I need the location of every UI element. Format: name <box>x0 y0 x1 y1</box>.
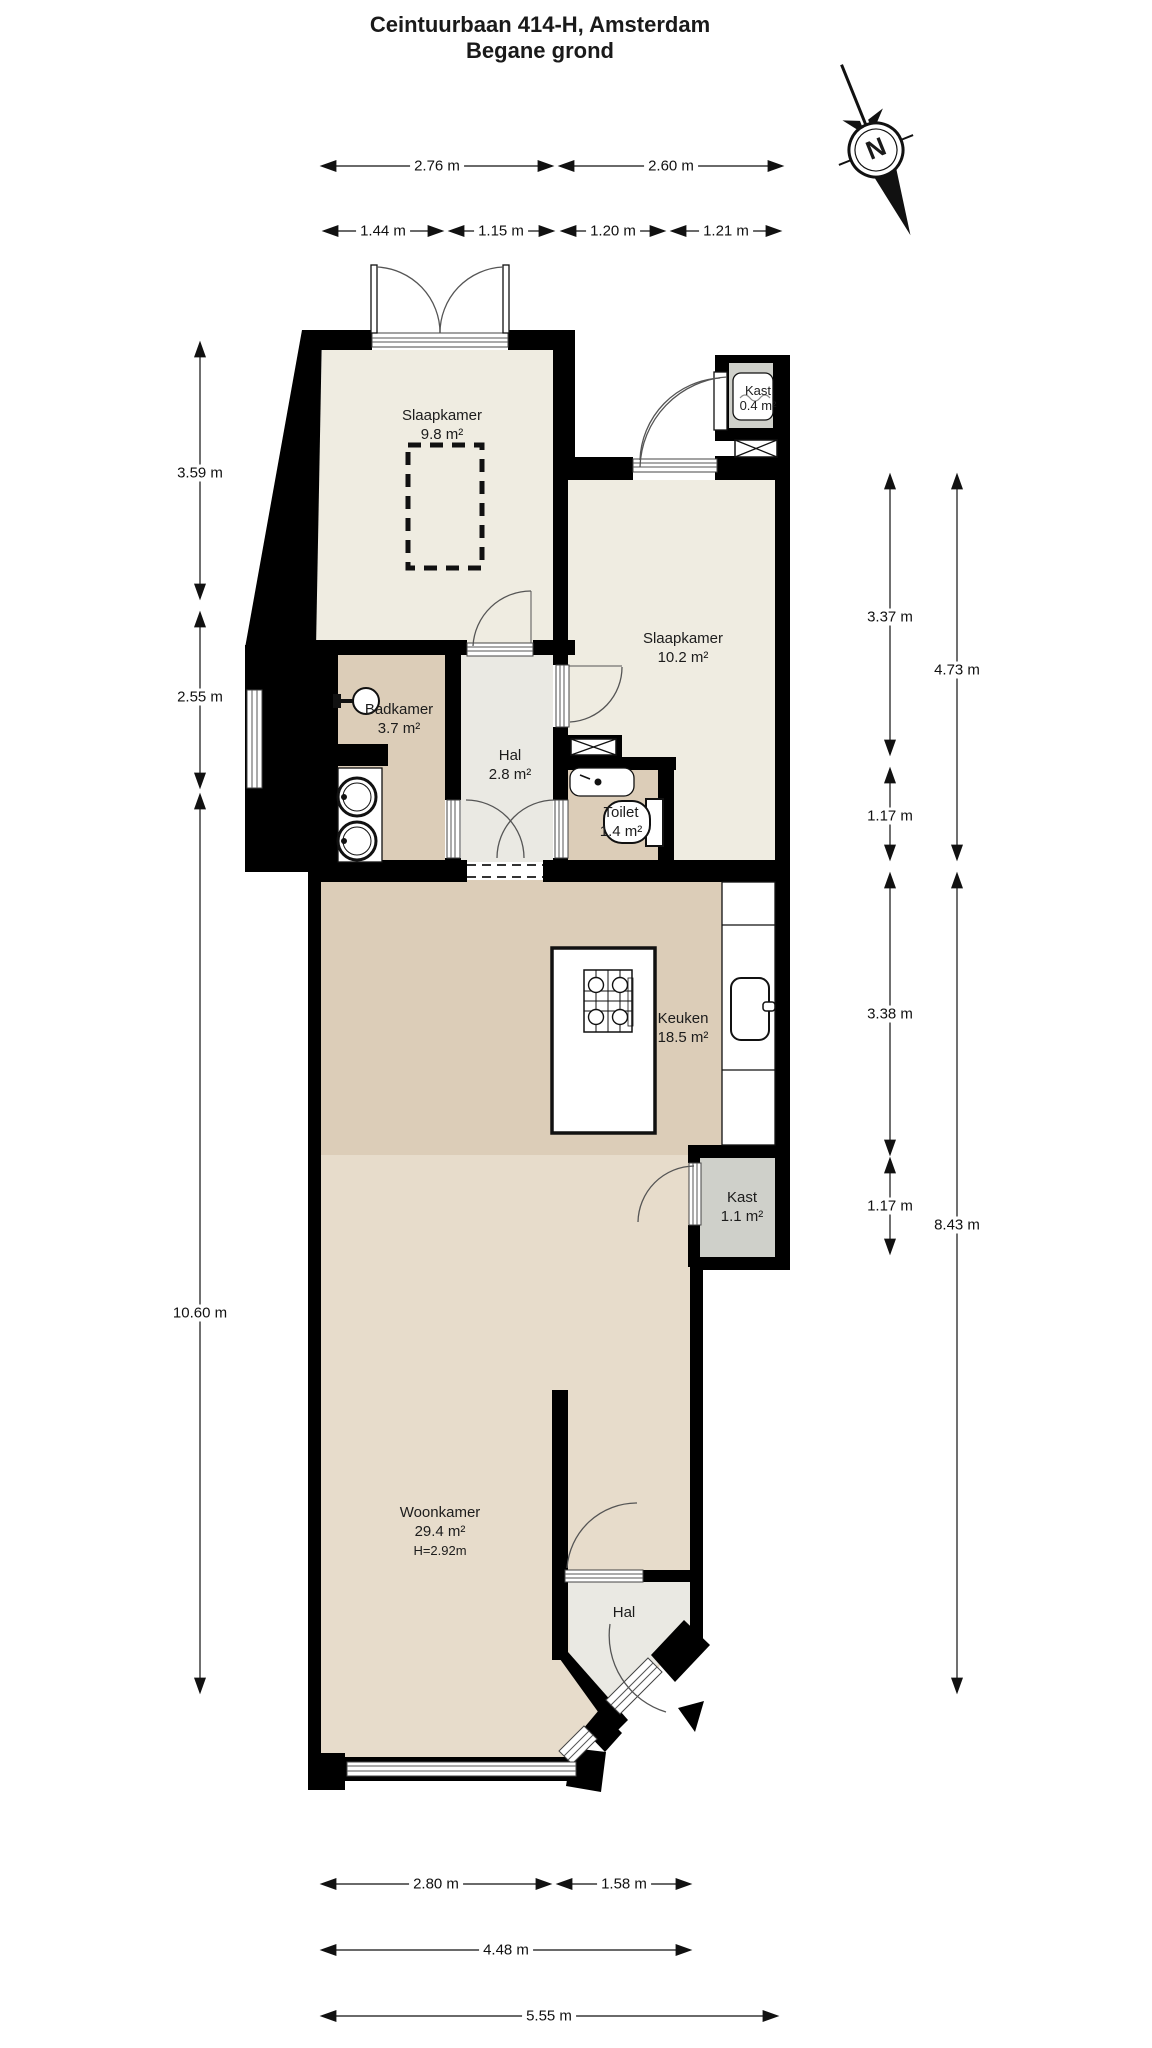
dim-right-3-38: 3.38 m <box>863 1006 917 1023</box>
room-label-hal-entree: Hal <box>574 1603 674 1622</box>
dim-right-1-17b: 1.17 m <box>863 1198 917 1215</box>
dim-bottom-1-58: 1.58 m <box>597 1876 651 1893</box>
french-door-left-arc <box>377 267 440 333</box>
page-title: Ceintuurbaan 414-H, Amsterdam <box>0 12 1080 38</box>
badkamer-door-threshold <box>447 800 460 858</box>
dim-top-1-15: 1.15 m <box>474 223 528 240</box>
dim-left-2-55: 2.55 m <box>173 689 227 706</box>
garden-door-threshold <box>633 459 717 472</box>
dim-top-2-60: 2.60 m <box>644 158 698 175</box>
slaapkamer2-door-threshold <box>556 665 569 727</box>
toilet-basin <box>570 768 634 796</box>
dim-right-4-73: 4.73 m <box>930 662 984 679</box>
dim-left-3-59: 3.59 m <box>173 465 227 482</box>
floor-slaapkamer-1 <box>314 350 553 643</box>
room-label-slaapkamer-1: Slaapkamer 9.8 m² <box>362 406 522 444</box>
room-label-woonkamer: Woonkamer 29.4 m² H=2.92m <box>350 1503 530 1560</box>
hal-entree-door-threshold <box>565 1570 643 1582</box>
room-label-toilet: Toilet 1.4 m² <box>561 803 681 841</box>
dim-top-1-21: 1.21 m <box>699 223 753 240</box>
garden-door-arc <box>640 378 720 460</box>
dim-bottom-2-80: 2.80 m <box>409 1876 463 1893</box>
dim-bottom-5-55: 5.55 m <box>522 2008 576 2025</box>
slaapkamer1-door-threshold <box>467 643 533 656</box>
floorplan-page: Ceintuurbaan 414-H, Amsterdam Begane gro… <box>0 0 1152 2048</box>
badkamer-window <box>247 690 262 788</box>
entrance-arrow-icon <box>678 1701 704 1732</box>
french-door-right-arc <box>440 267 503 333</box>
room-label-kast: Kast 1.1 m² <box>682 1188 802 1226</box>
room-label-kast-boiler: Kast 0.4 m² <box>713 383 803 413</box>
title-block: Ceintuurbaan 414-H, Amsterdam Begane gro… <box>0 12 1080 64</box>
room-label-slaapkamer-2: Slaapkamer 10.2 m² <box>603 629 763 667</box>
french-door-right-leaf <box>503 265 509 333</box>
french-door-left-leaf <box>371 265 377 333</box>
dim-top-2-76: 2.76 m <box>410 158 464 175</box>
page-subtitle: Begane grond <box>0 38 1080 64</box>
room-label-hal: Hal 2.8 m² <box>450 746 570 784</box>
dim-bottom-4-48: 4.48 m <box>479 1942 533 1959</box>
dim-right-3-37: 3.37 m <box>863 609 917 626</box>
room-label-keuken: Keuken 18.5 m² <box>603 1009 763 1047</box>
dim-top-1-20: 1.20 m <box>586 223 640 240</box>
room-label-badkamer: Badkamer 3.7 m² <box>319 700 479 738</box>
french-door-threshold <box>372 333 508 347</box>
dim-left-10-60: 10.60 m <box>169 1305 231 1322</box>
woonkamer-window <box>347 1762 576 1776</box>
dim-top-1-44: 1.44 m <box>356 223 410 240</box>
dim-right-8-43: 8.43 m <box>930 1217 984 1234</box>
floorplan-drawing <box>0 0 1152 2048</box>
dim-right-1-17a: 1.17 m <box>863 808 917 825</box>
